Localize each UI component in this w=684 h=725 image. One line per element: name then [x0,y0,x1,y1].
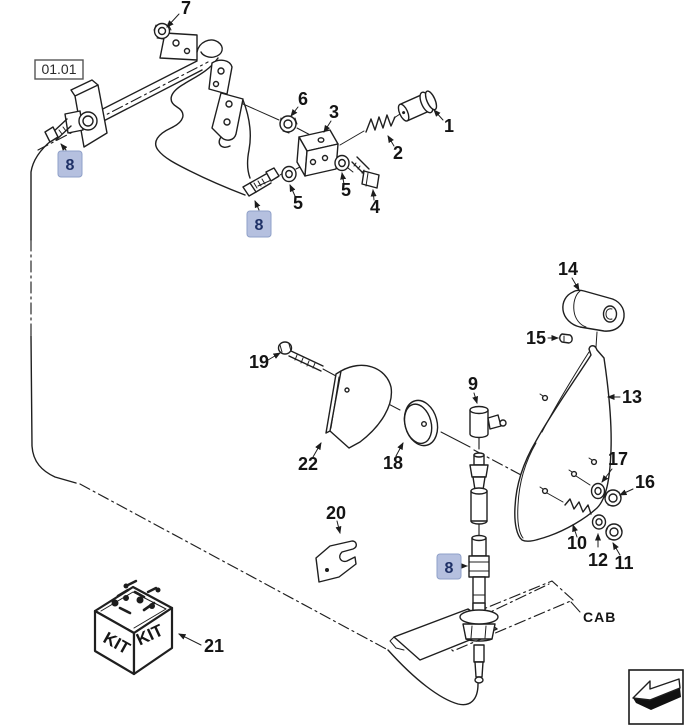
callout-2: 2 [393,143,403,163]
part-9-swivel [470,407,506,438]
callout-5-right: 5 [341,180,351,200]
callout-13: 13 [622,387,642,407]
highlight-badge-8-middle-label: 8 [255,217,264,234]
callout-9: 9 [468,374,478,394]
callout-11: 11 [614,553,633,573]
kit-box: KIT KIT [95,581,172,674]
part-5-washer-right [335,156,349,171]
part-3-bracket [297,130,338,176]
nav-return-button[interactable] [629,670,683,724]
callout-18: 18 [383,453,403,473]
callout-3: 3 [329,102,339,122]
reference-box[interactable]: 01.01 [35,60,83,79]
part-15-pin [560,334,572,343]
part-1-pin-bushing [395,89,439,125]
highlight-badge-8-left-label: 8 [66,157,75,174]
exploded-parts-diagram: KIT KIT 7 6 3 1 2 5 4 5 1 [0,0,684,725]
part-4-bolt [352,157,379,188]
part-22-plate [326,365,391,448]
callout-19: 19 [249,352,269,372]
highlight-badge-8-middle[interactable]: 8 [247,201,271,237]
callout-20: 20 [326,503,346,523]
part-19-bolt [279,342,324,371]
callout-17: 17 [608,449,628,469]
callout-7: 7 [181,0,191,18]
reference-box-label: 01.01 [41,61,76,77]
part-8-cable-assembly-bottom [460,453,498,683]
cab-label: CAB [583,609,616,625]
part-5-washer-left [282,167,296,182]
part-13-plate [515,346,611,541]
callout-12: 12 [588,550,608,570]
callout-5-left: 5 [293,193,303,213]
highlight-badge-8-bottom-label: 8 [445,560,454,577]
highlight-badge-8-left[interactable]: 8 [58,144,82,177]
highlight-badge-8-bottom[interactable]: 8 [437,554,467,579]
part-20-bracket [316,541,356,582]
callout-1: 1 [444,116,454,136]
callout-22: 22 [298,454,318,474]
callout-10: 10 [567,533,587,553]
callout-14: 14 [558,259,578,279]
part-6-nut [280,116,297,133]
callout-6: 6 [298,89,308,109]
callout-4: 4 [370,197,380,217]
parts-diagram-page: KIT KIT 7 6 3 1 2 5 4 5 1 [0,0,684,725]
part-18-disc [400,397,443,450]
callout-15: 15 [526,328,546,348]
callout-16: 16 [635,472,655,492]
callout-21: 21 [204,636,224,656]
part-2-spring [366,115,395,132]
